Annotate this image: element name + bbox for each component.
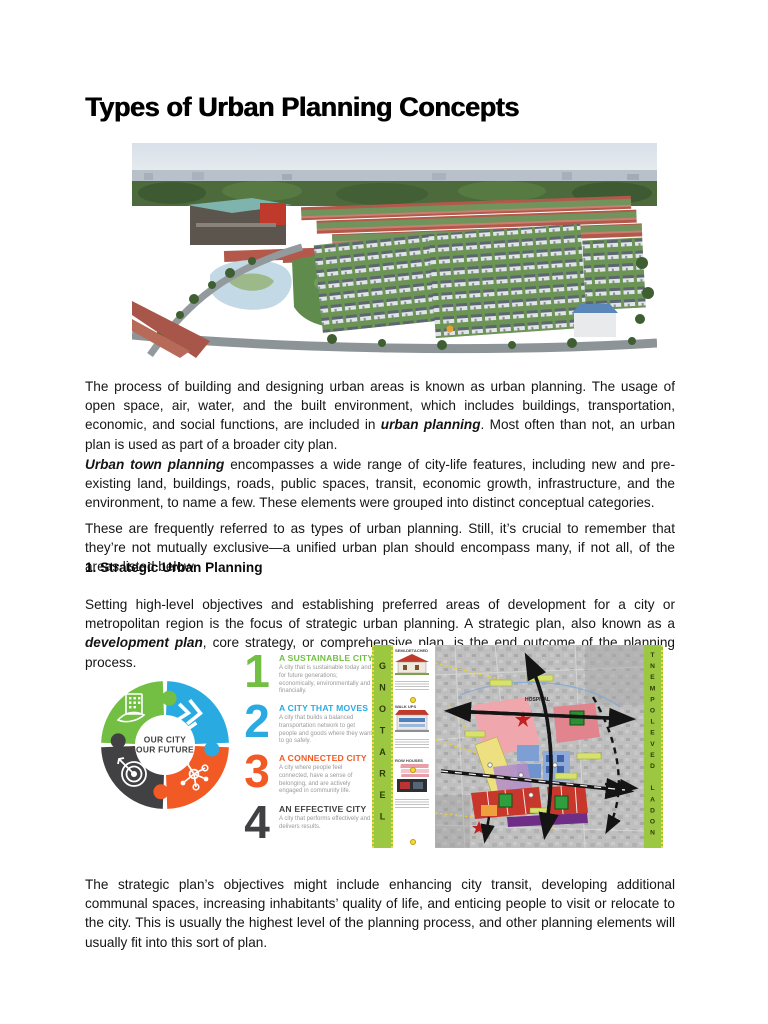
mall-building [187, 198, 292, 245]
paragraph-intro: The process of building and designing ur… [85, 377, 675, 455]
yellow-marker [410, 839, 416, 845]
item-number: 3 [242, 751, 272, 796]
nodal-development-banner: TNEMPOLEVED LADON [642, 645, 663, 848]
puzzle-ring: OUR CITY OUR FUTURE [88, 666, 242, 824]
infographic-item-city-that-moves: 2 A CITY THAT MOVES A city that builds a… [242, 701, 374, 746]
paragraph-strategic-objectives: The strategic plan’s objectives might in… [85, 875, 675, 953]
bold-term-urban-planning: urban planning [381, 417, 481, 432]
item-number: 4 [242, 802, 272, 842]
leratong-nodal-development-map: GNOTAREL SEMI-DETACHED WALK UPS ROW HOUS… [372, 645, 663, 848]
leratong-banner-text: GNOTAREL [378, 661, 388, 833]
caption-lines [395, 739, 429, 748]
map-illustration: HOSPITAL [435, 645, 644, 848]
item-description: A city that builds a balanced transporta… [279, 715, 373, 746]
housing-typology-panel: SEMI-DETACHED WALK UPS ROW HOUSES [393, 645, 435, 848]
item-number: 2 [242, 701, 272, 746]
item-title: AN EFFECTIVE CITY [279, 804, 373, 814]
item-title: A SUSTAINABLE CITY [279, 653, 373, 663]
yellow-marker [410, 697, 416, 703]
bold-term-urban-town-planning: Urban town planning [85, 457, 224, 472]
bold-term-development-plan: development plan [85, 635, 203, 650]
infographic-item-connected-city: 3 A CONNECTED CITY A city where people f… [242, 751, 374, 796]
aerial-development-photo [132, 143, 657, 358]
nodal-development-banner-text: TNEMPOLEVED LADON [649, 652, 656, 841]
puzzle-center-line1: OUR CITY [144, 735, 187, 745]
caption-lines [395, 681, 429, 690]
item-description: A city where people feel connected, have… [279, 765, 373, 796]
section-heading-strategic-urban-planning: 1. Strategic Urban Planning [85, 560, 263, 575]
paragraph-text: Setting high-level objectives and establ… [85, 597, 675, 631]
aerial-photo-illustration [132, 143, 657, 358]
item-description: A city that performs effectively and del… [279, 816, 373, 832]
hospital-label: HOSPITAL [525, 697, 550, 703]
item-title: A CONNECTED CITY [279, 753, 373, 763]
paragraph-urban-town-planning: Urban town planning encompasses a wide r… [85, 455, 675, 513]
development-framework-map: HOSPITAL [435, 645, 642, 848]
our-city-puzzle-infographic: OUR CITY OUR FUTURE [88, 666, 242, 824]
infographic-item-sustainable-city: 1 A SUSTAINABLE CITY A city that is sust… [242, 651, 374, 696]
document-page: { "page": { "title": "Types of Urban Pla… [0, 0, 768, 1024]
caption-lines [395, 799, 429, 808]
item-number: 1 [242, 651, 272, 696]
infographic-item-effective-city: 4 AN EFFECTIVE CITY A city that performs… [242, 802, 374, 842]
item-description: A city that is sustainable today and for… [279, 665, 373, 696]
item-title: A CITY THAT MOVES [279, 703, 373, 713]
yellow-marker [410, 767, 416, 773]
walk-ups-thumbnail [395, 709, 429, 733]
semi-detached-house-thumbnail [395, 653, 429, 675]
puzzle-center-line2: OUR FUTURE [136, 745, 194, 755]
leratong-banner: GNOTAREL [372, 645, 393, 848]
page-title: Types of Urban Planning Concepts [85, 92, 519, 123]
